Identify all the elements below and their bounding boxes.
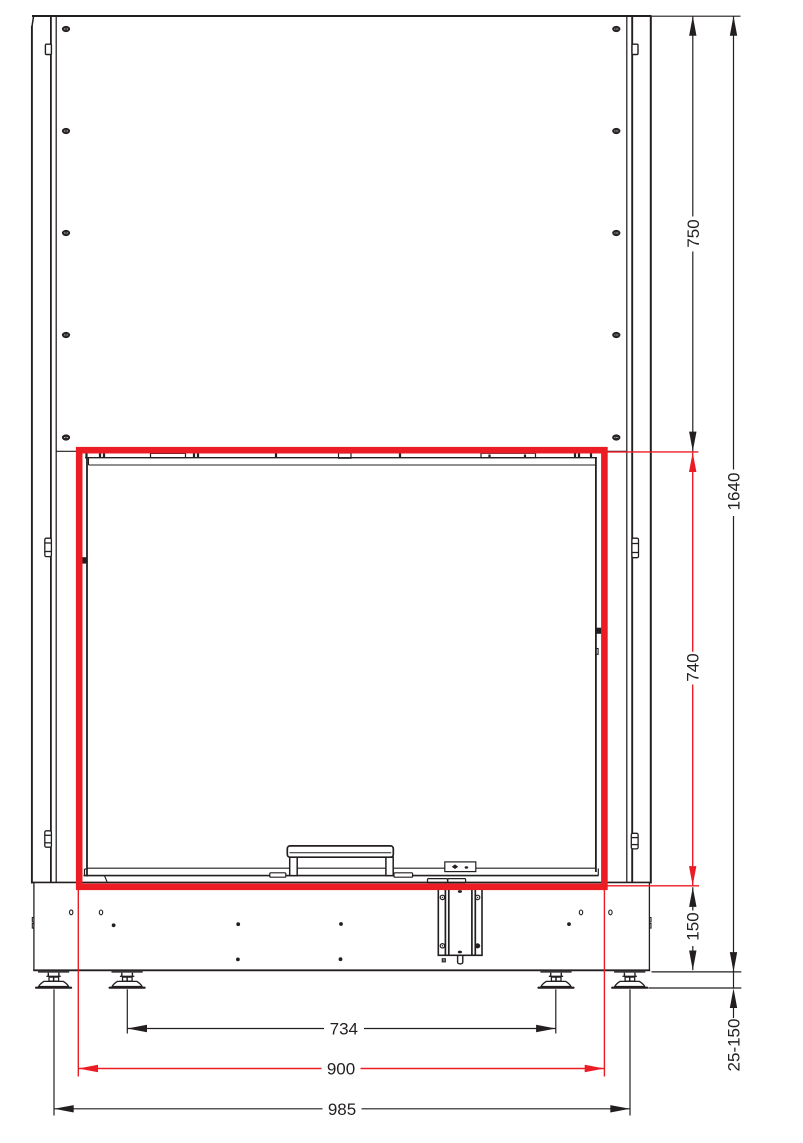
svg-text:750: 750 [684, 219, 703, 247]
svg-text:985: 985 [328, 1100, 356, 1119]
svg-text:734: 734 [330, 1020, 358, 1039]
svg-text:25-150: 25-150 [725, 1019, 744, 1072]
svg-text:1640: 1640 [725, 473, 744, 511]
svg-text:150: 150 [684, 912, 703, 940]
svg-text:740: 740 [684, 653, 703, 681]
svg-text:900: 900 [327, 1060, 355, 1079]
